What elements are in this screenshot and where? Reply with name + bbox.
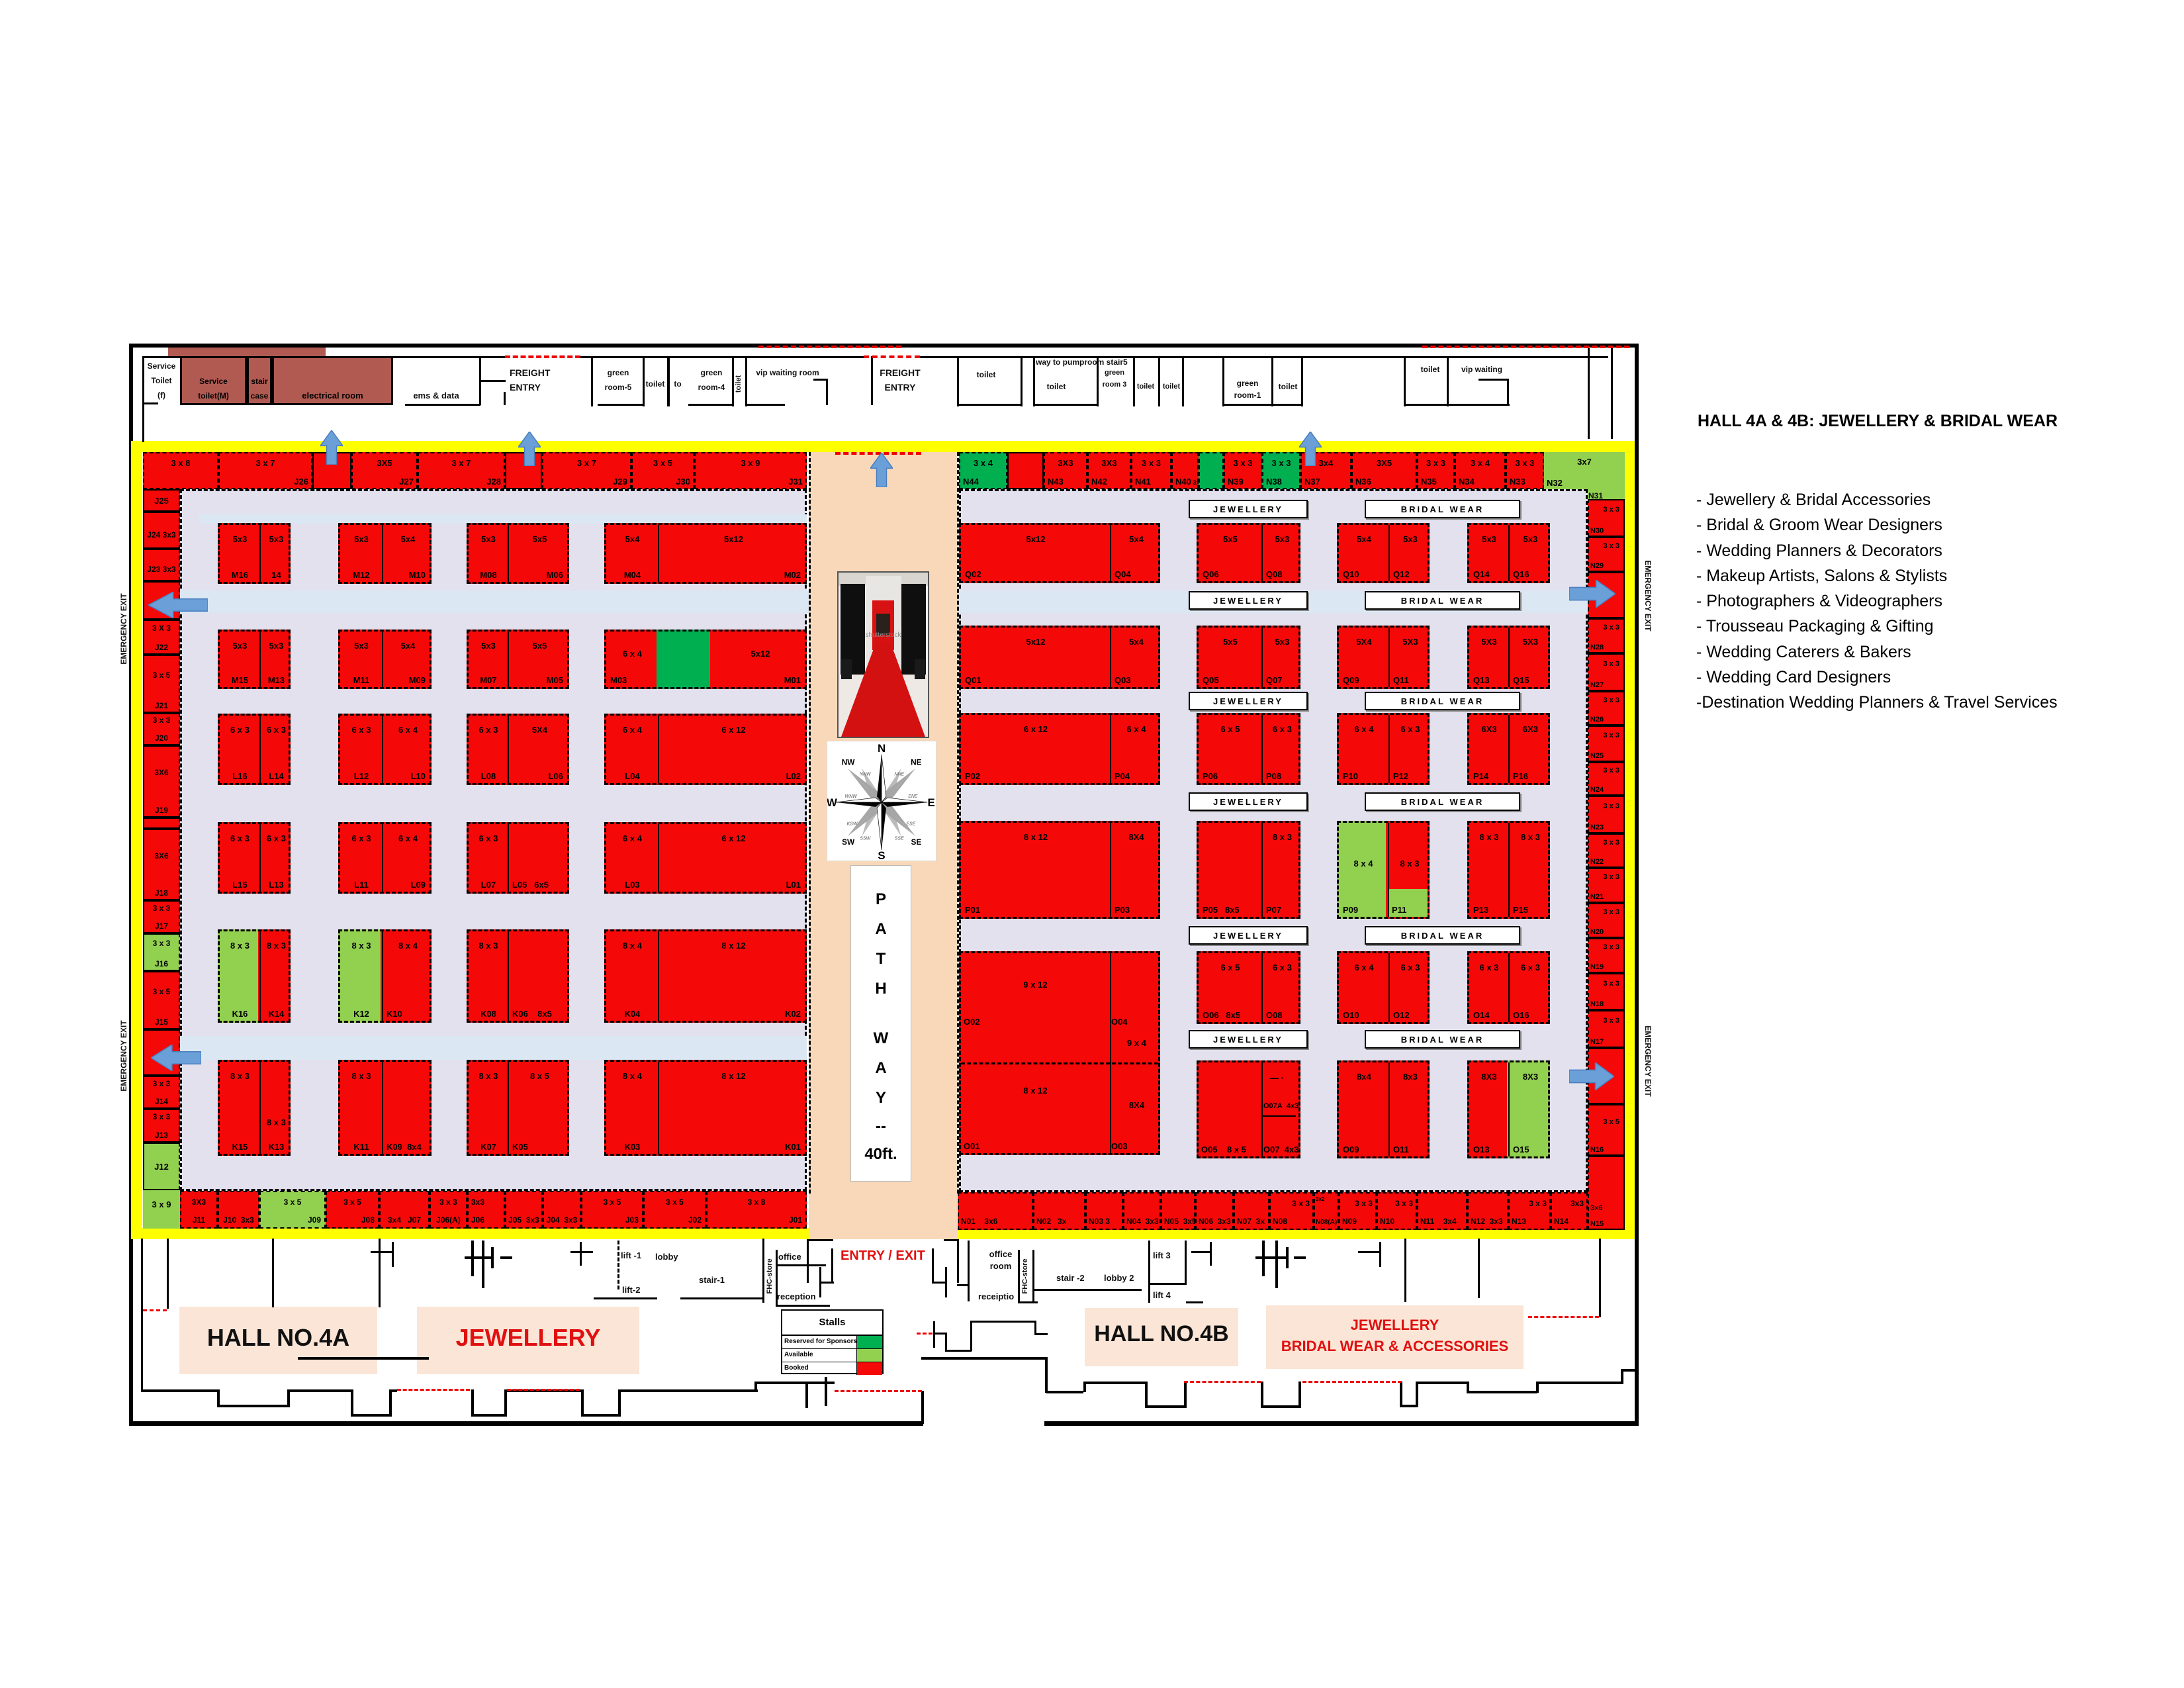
svg-text:S: S	[878, 849, 885, 861]
svg-text:KSW: KSW	[847, 822, 858, 827]
svg-text:ESE: ESE	[907, 822, 916, 827]
svg-text:N: N	[878, 742, 886, 755]
svg-text:W: W	[827, 796, 837, 809]
svg-text:NW: NW	[842, 758, 856, 767]
svg-text:SW: SW	[842, 837, 855, 847]
svg-text:SE: SE	[911, 837, 921, 847]
svg-text:NNW: NNW	[860, 772, 872, 776]
svg-text:ENE: ENE	[908, 794, 918, 799]
svg-text:E: E	[927, 796, 934, 809]
svg-text:NE: NE	[911, 758, 922, 767]
svg-text:NNE: NNE	[894, 772, 904, 776]
svg-text:SSE: SSE	[895, 836, 904, 841]
svg-text:WNW: WNW	[845, 794, 858, 799]
svg-text:SSW: SSW	[860, 836, 871, 841]
